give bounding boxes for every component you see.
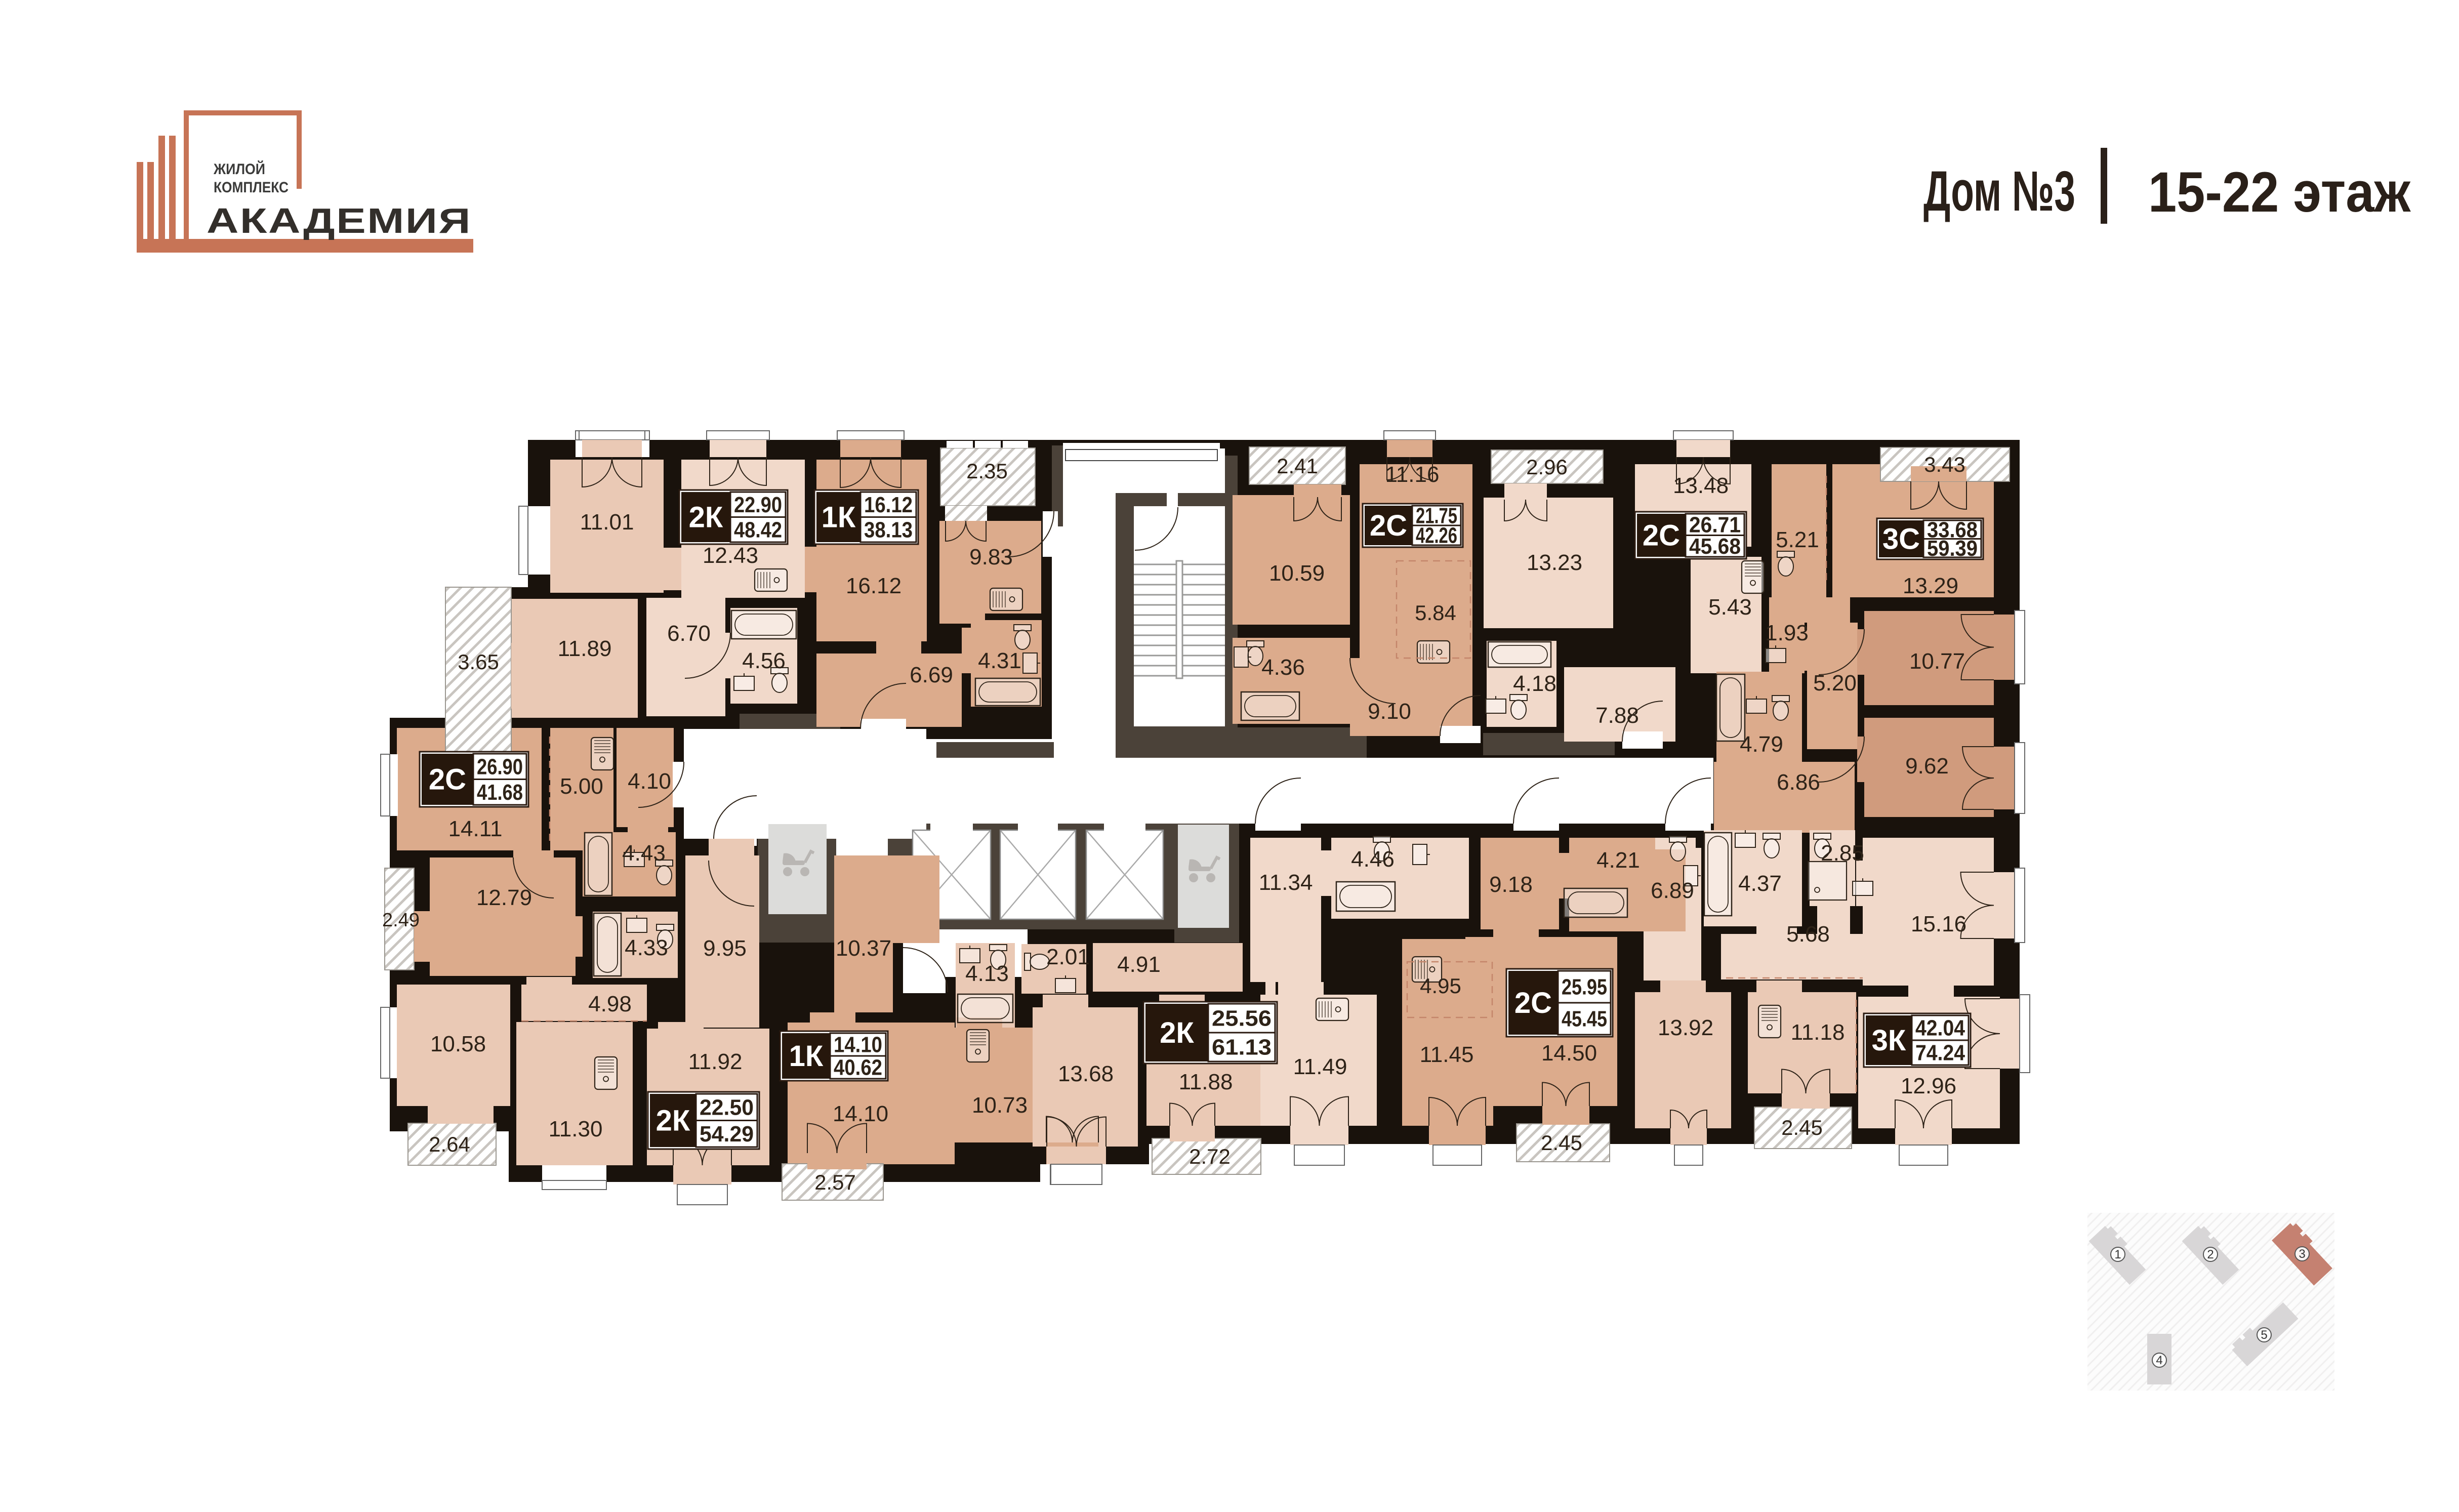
svg-text:2С: 2С xyxy=(429,763,466,796)
svg-text:4.10: 4.10 xyxy=(628,769,671,794)
svg-text:12.43: 12.43 xyxy=(703,543,758,568)
svg-text:41.68: 41.68 xyxy=(477,780,523,805)
svg-text:4: 4 xyxy=(2156,1354,2162,1367)
svg-text:14.50: 14.50 xyxy=(1541,1041,1597,1066)
svg-text:7.88: 7.88 xyxy=(1595,703,1639,728)
svg-text:3К: 3К xyxy=(1872,1024,1906,1057)
svg-text:9.83: 9.83 xyxy=(969,545,1013,569)
svg-text:4.33: 4.33 xyxy=(625,935,668,960)
svg-text:2.45: 2.45 xyxy=(1781,1116,1823,1139)
svg-text:16.12: 16.12 xyxy=(864,493,913,517)
svg-text:1: 1 xyxy=(2114,1248,2121,1261)
svg-text:11.16: 11.16 xyxy=(1385,462,1440,487)
svg-text:3.43: 3.43 xyxy=(1924,453,1965,476)
svg-text:11.30: 11.30 xyxy=(549,1117,603,1141)
svg-text:4.56: 4.56 xyxy=(742,648,786,673)
svg-text:13.68: 13.68 xyxy=(1058,1061,1114,1086)
svg-text:2.64: 2.64 xyxy=(429,1132,470,1156)
svg-text:25.95: 25.95 xyxy=(1562,975,1607,1000)
svg-text:5: 5 xyxy=(2261,1328,2267,1342)
svg-text:6.86: 6.86 xyxy=(1777,770,1820,795)
svg-text:5.68: 5.68 xyxy=(1786,922,1830,947)
svg-text:9.18: 9.18 xyxy=(1489,872,1533,897)
svg-text:26.90: 26.90 xyxy=(477,754,523,779)
svg-text:42.04: 42.04 xyxy=(1915,1016,1965,1041)
svg-text:15-22 этаж: 15-22 этаж xyxy=(2148,160,2411,224)
svg-text:54.29: 54.29 xyxy=(700,1122,754,1147)
svg-text:2.49: 2.49 xyxy=(382,910,420,931)
svg-text:11.88: 11.88 xyxy=(1179,1070,1233,1094)
svg-text:4.79: 4.79 xyxy=(1740,732,1783,757)
svg-text:6.69: 6.69 xyxy=(910,663,953,687)
svg-text:2.35: 2.35 xyxy=(966,459,1008,483)
svg-text:2.96: 2.96 xyxy=(1526,455,1568,479)
svg-text:11.34: 11.34 xyxy=(1259,870,1313,895)
svg-text:2К: 2К xyxy=(1160,1016,1194,1049)
svg-text:13.29: 13.29 xyxy=(1903,574,1958,598)
svg-text:11.01: 11.01 xyxy=(580,510,634,535)
svg-text:2С: 2С xyxy=(1514,987,1552,1019)
svg-text:11.49: 11.49 xyxy=(1293,1054,1347,1079)
svg-text:4.13: 4.13 xyxy=(965,961,1009,986)
svg-text:9.62: 9.62 xyxy=(1905,754,1949,779)
svg-text:Дом №3: Дом №3 xyxy=(1923,159,2075,223)
svg-text:1.93: 1.93 xyxy=(1765,621,1809,645)
svg-text:6.70: 6.70 xyxy=(667,621,711,646)
svg-text:5.21: 5.21 xyxy=(1776,527,1819,552)
svg-text:22.90: 22.90 xyxy=(734,493,782,517)
svg-text:11.89: 11.89 xyxy=(558,636,612,661)
svg-text:4.36: 4.36 xyxy=(1261,655,1305,680)
svg-text:9.95: 9.95 xyxy=(703,936,747,961)
svg-text:6.89: 6.89 xyxy=(1651,878,1694,903)
svg-text:1К: 1К xyxy=(789,1040,824,1073)
svg-text:2.45: 2.45 xyxy=(1541,1131,1582,1155)
svg-text:59.39: 59.39 xyxy=(1927,536,1978,561)
svg-text:10.58: 10.58 xyxy=(430,1032,486,1056)
svg-text:2К: 2К xyxy=(689,501,723,534)
svg-text:ЖИЛОЙ: ЖИЛОЙ xyxy=(213,160,265,178)
svg-text:10.37: 10.37 xyxy=(836,936,891,961)
svg-text:2.72: 2.72 xyxy=(1189,1145,1231,1168)
svg-text:15.16: 15.16 xyxy=(1911,912,1966,936)
svg-text:45.68: 45.68 xyxy=(1689,534,1741,559)
svg-text:4.91: 4.91 xyxy=(1117,952,1161,977)
svg-text:22.50: 22.50 xyxy=(700,1095,754,1120)
svg-text:13.48: 13.48 xyxy=(1673,473,1729,498)
svg-text:5.00: 5.00 xyxy=(560,774,603,799)
svg-text:40.62: 40.62 xyxy=(834,1055,882,1080)
svg-text:14.10: 14.10 xyxy=(834,1033,882,1057)
svg-text:1К: 1К xyxy=(822,501,856,534)
svg-text:74.24: 74.24 xyxy=(1915,1041,1965,1066)
svg-text:2С: 2С xyxy=(1643,519,1680,552)
svg-text:48.42: 48.42 xyxy=(734,517,782,542)
svg-text:9.10: 9.10 xyxy=(1368,699,1411,724)
svg-text:61.13: 61.13 xyxy=(1212,1035,1272,1060)
svg-text:4.95: 4.95 xyxy=(1420,974,1461,998)
svg-text:13.92: 13.92 xyxy=(1658,1015,1713,1040)
svg-text:2.01: 2.01 xyxy=(1046,945,1090,969)
svg-text:45.45: 45.45 xyxy=(1562,1007,1607,1032)
svg-text:25.56: 25.56 xyxy=(1212,1006,1272,1031)
svg-text:3.65: 3.65 xyxy=(458,650,499,674)
svg-text:3: 3 xyxy=(2299,1247,2305,1261)
svg-text:5.43: 5.43 xyxy=(1708,595,1752,620)
svg-text:12.96: 12.96 xyxy=(1901,1074,1956,1098)
svg-text:10.73: 10.73 xyxy=(972,1093,1028,1118)
svg-text:12.79: 12.79 xyxy=(476,885,532,910)
svg-text:АКАДЕМИЯ: АКАДЕМИЯ xyxy=(207,201,472,240)
svg-text:10.77: 10.77 xyxy=(1909,649,1965,674)
svg-text:16.12: 16.12 xyxy=(846,574,901,598)
svg-text:11.45: 11.45 xyxy=(1420,1042,1474,1067)
svg-text:2.57: 2.57 xyxy=(814,1170,856,1194)
svg-text:5.84: 5.84 xyxy=(1415,601,1456,625)
svg-text:4.37: 4.37 xyxy=(1738,871,1782,896)
svg-text:2К: 2К xyxy=(656,1105,690,1137)
svg-text:КОМПЛЕКС: КОМПЛЕКС xyxy=(214,179,289,196)
svg-text:4.43: 4.43 xyxy=(622,841,666,866)
svg-text:14.11: 14.11 xyxy=(448,816,503,841)
svg-text:4.46: 4.46 xyxy=(1351,847,1395,872)
svg-text:4.98: 4.98 xyxy=(588,992,632,1016)
svg-text:2: 2 xyxy=(2207,1248,2214,1261)
svg-text:4.31: 4.31 xyxy=(978,648,1021,673)
svg-text:2.85: 2.85 xyxy=(1821,841,1864,866)
svg-text:5.20: 5.20 xyxy=(1813,671,1857,696)
svg-text:4.21: 4.21 xyxy=(1596,848,1640,873)
svg-text:2С: 2С xyxy=(1370,509,1407,542)
svg-text:4.18: 4.18 xyxy=(1513,671,1556,696)
svg-text:14.10: 14.10 xyxy=(833,1101,888,1126)
svg-text:38.13: 38.13 xyxy=(864,517,913,542)
svg-text:42.26: 42.26 xyxy=(1416,523,1457,548)
svg-text:2.41: 2.41 xyxy=(1277,454,1318,478)
svg-text:3С: 3С xyxy=(1882,523,1920,556)
svg-text:11.92: 11.92 xyxy=(688,1049,743,1074)
svg-text:13.23: 13.23 xyxy=(1527,550,1582,575)
svg-text:11.18: 11.18 xyxy=(1791,1020,1845,1045)
svg-text:10.59: 10.59 xyxy=(1269,561,1325,586)
